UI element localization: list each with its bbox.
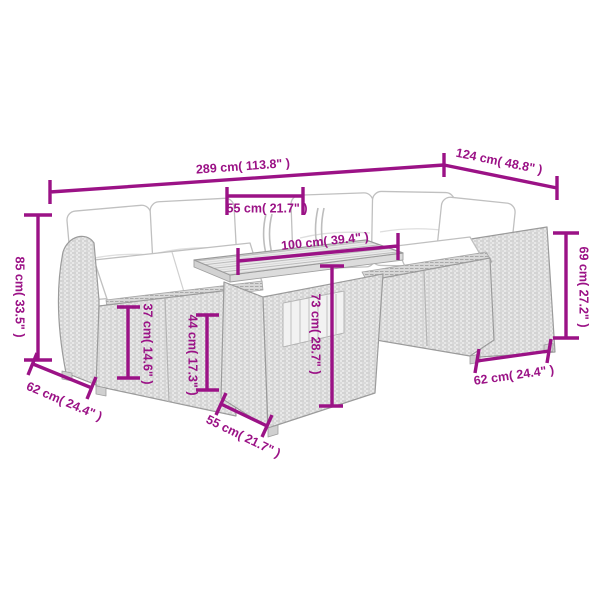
dim-label-backrest-width: 55 cm( 21.7" ) <box>227 201 308 215</box>
dim-label-arm-height: 69 cm( 27.2" ) <box>577 247 591 328</box>
dim-backrest-width: 55 cm( 21.7" ) <box>227 187 308 215</box>
dim-label-right-depth: 124 cm( 48.8" ) <box>455 146 544 177</box>
dim-back-height: 85 cm( 33.5" ) <box>13 215 52 360</box>
diagram-canvas: 289 cm( 113.8" ) 124 cm( 48.8" ) 55 cm( … <box>0 0 600 600</box>
left-armrest <box>58 236 99 386</box>
furniture-dimension-diagram: 289 cm( 113.8" ) 124 cm( 48.8" ) 55 cm( … <box>0 0 600 600</box>
dim-right-depth: 124 cm( 48.8" ) <box>444 146 557 200</box>
sofa-set-drawing <box>58 191 555 437</box>
coffee-table <box>194 240 403 428</box>
dim-arm-height: 69 cm( 27.2" ) <box>553 233 591 338</box>
dim-label-armrest-height: 37 cm( 14.6" ) <box>141 304 155 385</box>
dim-label-seat-width-right: 62 cm( 24.4" ) <box>473 363 555 388</box>
dim-label-total-width: 289 cm( 113.8" ) <box>195 156 290 177</box>
dim-label-seat-height: 44 cm( 17.3" ) <box>186 315 200 396</box>
dim-label-table-height: 73 cm( 28.7" ) <box>309 294 323 375</box>
dim-label-back-height: 85 cm( 33.5" ) <box>13 257 27 338</box>
left-sofa-front-panel <box>96 290 236 416</box>
